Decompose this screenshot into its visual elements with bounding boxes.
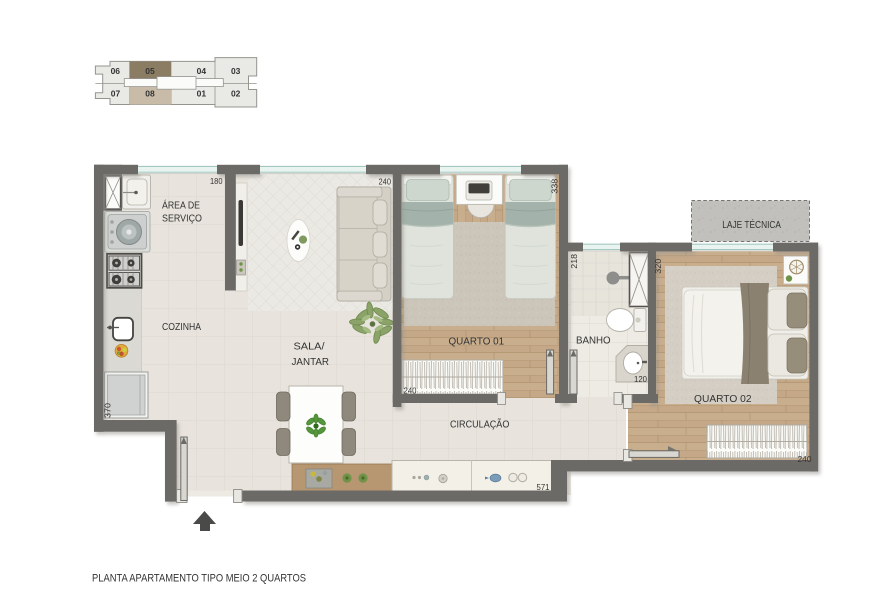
svg-text:ÁREA DE: ÁREA DE xyxy=(162,199,200,212)
svg-text:BANHO: BANHO xyxy=(576,335,611,347)
svg-text:03: 03 xyxy=(231,66,241,76)
svg-text:07: 07 xyxy=(111,89,121,99)
svg-text:SERVIÇO: SERVIÇO xyxy=(162,213,202,225)
svg-text:370: 370 xyxy=(103,403,113,418)
svg-text:338: 338 xyxy=(550,178,560,193)
svg-text:01: 01 xyxy=(197,89,207,99)
svg-text:QUARTO 01: QUARTO 01 xyxy=(449,335,505,347)
svg-text:180: 180 xyxy=(210,176,223,186)
svg-text:240: 240 xyxy=(798,454,812,464)
svg-text:218: 218 xyxy=(569,254,579,269)
svg-text:320: 320 xyxy=(653,258,663,273)
svg-text:571: 571 xyxy=(537,482,550,492)
svg-text:120: 120 xyxy=(634,374,647,384)
svg-text:02: 02 xyxy=(231,89,241,99)
svg-text:JANTAR: JANTAR xyxy=(292,356,330,368)
svg-text:05: 05 xyxy=(145,66,155,76)
svg-text:08: 08 xyxy=(145,89,155,99)
svg-text:COZINHA: COZINHA xyxy=(162,321,201,333)
svg-text:PLANTA APARTAMENTO TIPO MEIO 2: PLANTA APARTAMENTO TIPO MEIO 2 QUARTOS xyxy=(92,573,306,585)
svg-text:04: 04 xyxy=(197,66,207,76)
svg-text:SALA/: SALA/ xyxy=(294,341,325,353)
svg-text:06: 06 xyxy=(111,66,121,76)
svg-text:240: 240 xyxy=(404,386,417,396)
svg-text:LAJE TÉCNICA: LAJE TÉCNICA xyxy=(722,218,781,231)
svg-text:CIRCULAÇÃO: CIRCULAÇÃO xyxy=(450,418,509,431)
svg-text:QUARTO 02: QUARTO 02 xyxy=(694,393,752,405)
svg-text:240: 240 xyxy=(379,177,392,187)
